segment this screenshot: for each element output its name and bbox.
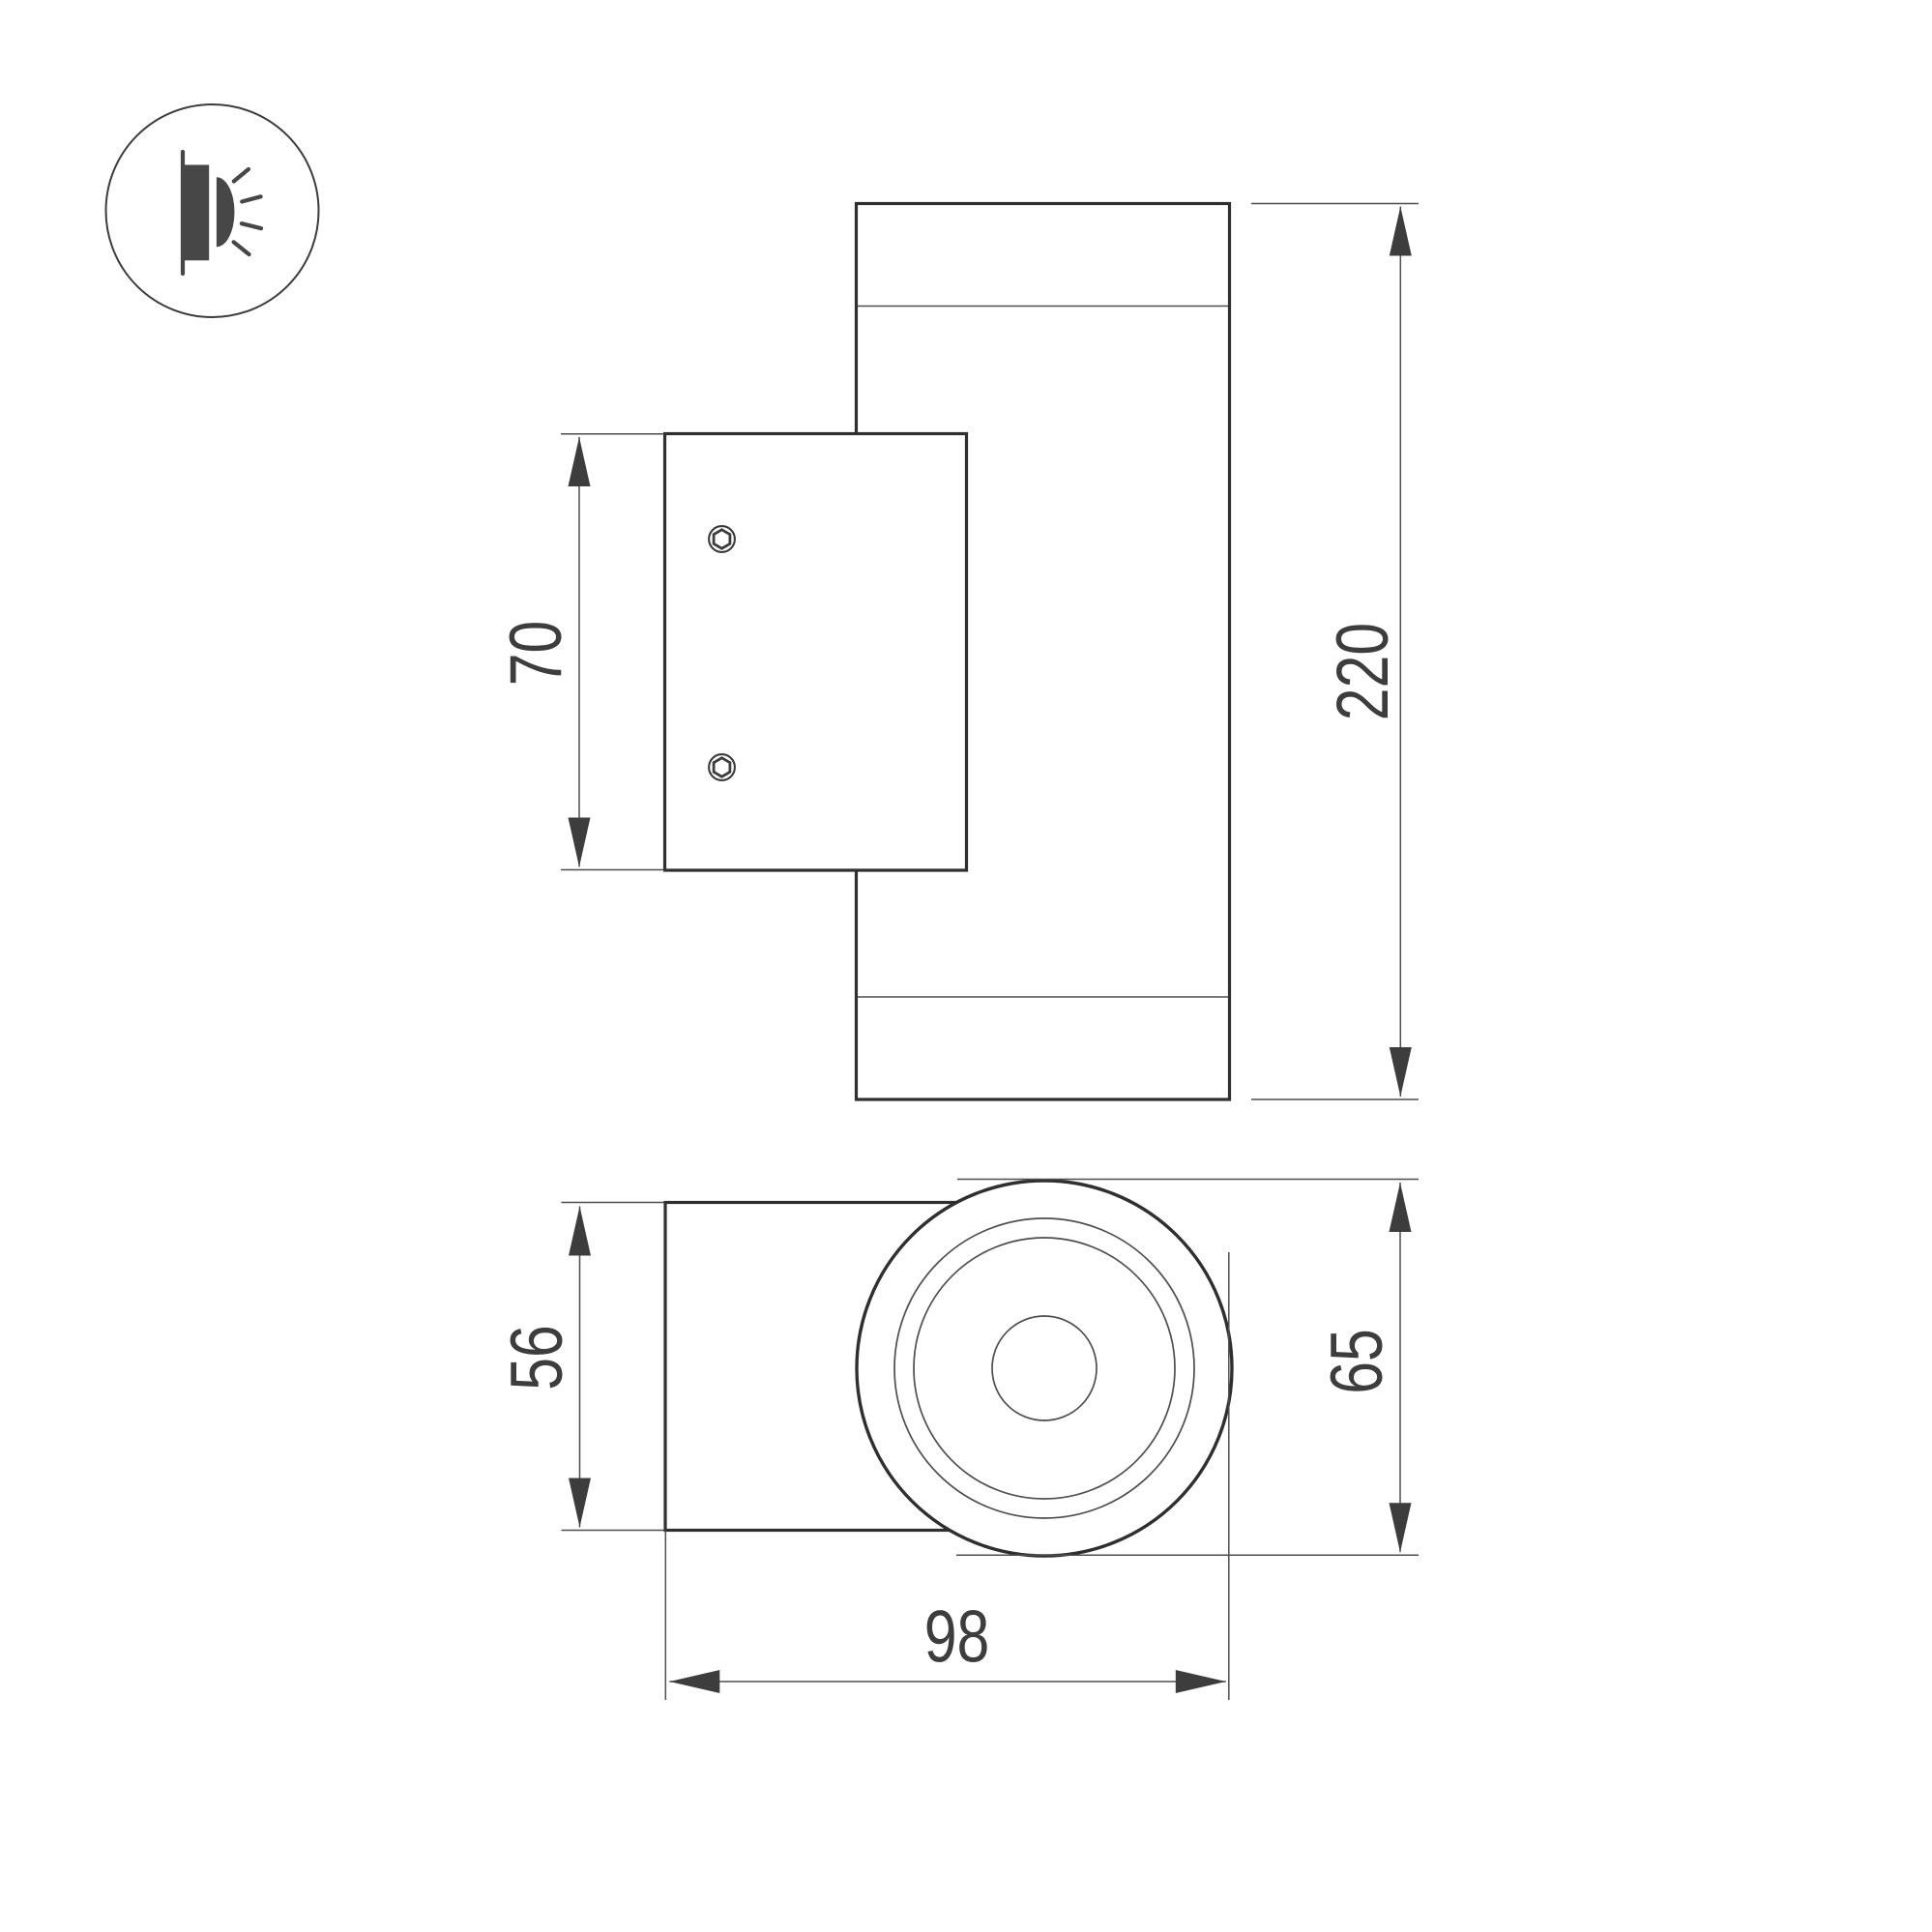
svg-text:98: 98 <box>924 1595 990 1678</box>
svg-text:56: 56 <box>496 1325 578 1390</box>
svg-text:220: 220 <box>1322 623 1404 720</box>
svg-text:70: 70 <box>495 621 577 687</box>
svg-text:65: 65 <box>1316 1329 1398 1394</box>
